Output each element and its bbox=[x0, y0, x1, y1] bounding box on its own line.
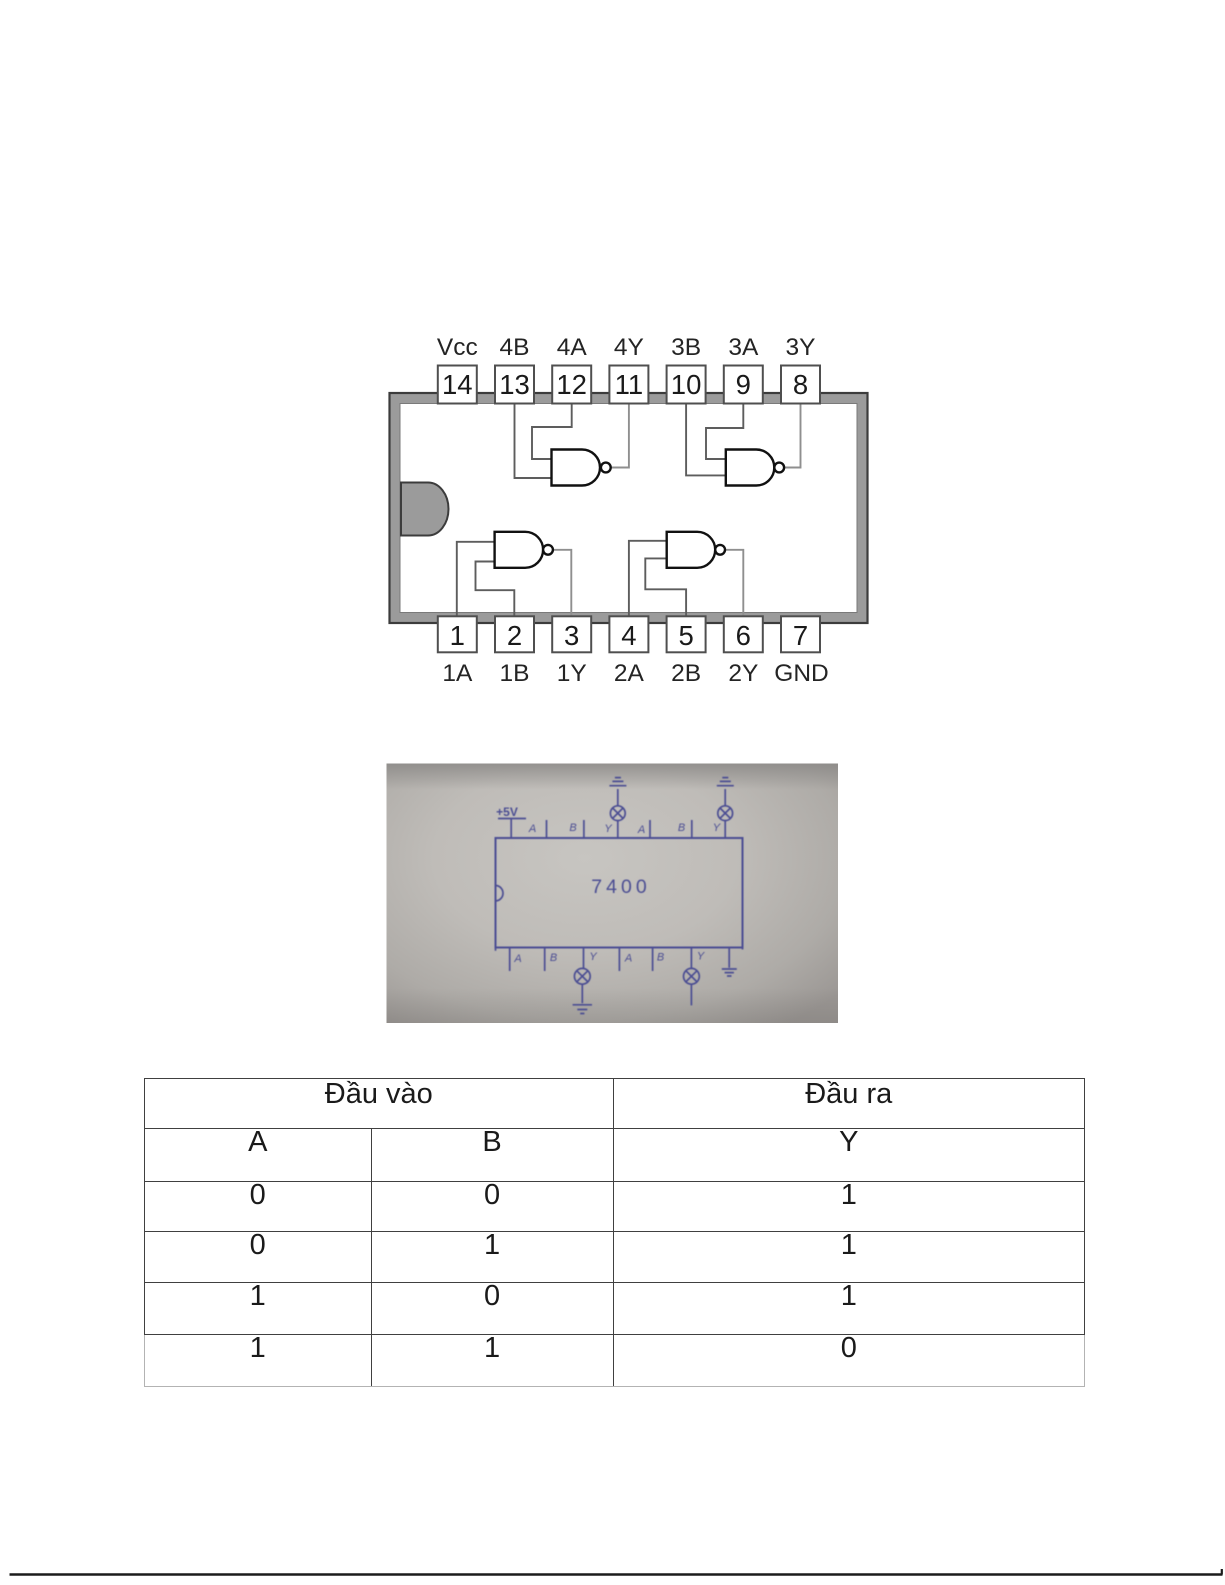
svg-text:13: 13 bbox=[499, 369, 530, 400]
svg-text:7400: 7400 bbox=[591, 876, 650, 898]
svg-text:A: A bbox=[624, 953, 632, 965]
svg-text:2Y: 2Y bbox=[728, 660, 758, 687]
svg-text:Vcc: Vcc bbox=[437, 334, 478, 361]
svg-text:2A: 2A bbox=[614, 660, 645, 687]
svg-text:4: 4 bbox=[621, 620, 636, 651]
svg-text:3A: 3A bbox=[728, 334, 759, 361]
svg-text:B: B bbox=[550, 952, 557, 964]
svg-text:2: 2 bbox=[507, 620, 522, 651]
svg-text:9: 9 bbox=[736, 369, 751, 400]
svg-text:Y: Y bbox=[697, 951, 705, 963]
svg-text:1Y: 1Y bbox=[557, 660, 587, 687]
svg-text:12: 12 bbox=[556, 369, 587, 400]
svg-text:4B: 4B bbox=[500, 334, 530, 361]
svg-text:3Y: 3Y bbox=[786, 334, 816, 361]
svg-text:8: 8 bbox=[793, 369, 808, 400]
svg-text:14: 14 bbox=[442, 369, 473, 400]
svg-text:A: A bbox=[528, 823, 536, 835]
svg-text:B: B bbox=[678, 822, 685, 834]
svg-text:A: A bbox=[637, 824, 645, 836]
svg-text:1B: 1B bbox=[500, 660, 530, 687]
svg-text:B: B bbox=[657, 952, 664, 964]
svg-text:11: 11 bbox=[615, 369, 644, 400]
svg-text:+5V: +5V bbox=[496, 805, 518, 819]
svg-text:A: A bbox=[513, 953, 521, 965]
svg-text:1A: 1A bbox=[442, 660, 473, 687]
svg-text:1: 1 bbox=[450, 620, 465, 651]
svg-text:Y: Y bbox=[604, 823, 612, 835]
svg-text:GND: GND bbox=[774, 660, 828, 687]
svg-text:Y: Y bbox=[589, 951, 597, 963]
svg-text:6: 6 bbox=[736, 620, 751, 651]
svg-text:4A: 4A bbox=[557, 334, 588, 361]
svg-text:Y: Y bbox=[713, 822, 721, 834]
svg-text:3B: 3B bbox=[671, 334, 701, 361]
svg-text:3: 3 bbox=[564, 620, 579, 651]
svg-text:5: 5 bbox=[678, 620, 693, 651]
svg-text:B: B bbox=[569, 822, 576, 834]
svg-text:4Y: 4Y bbox=[614, 334, 644, 361]
svg-text:2B: 2B bbox=[671, 660, 701, 687]
svg-text:7: 7 bbox=[793, 620, 808, 651]
svg-text:10: 10 bbox=[671, 369, 702, 400]
